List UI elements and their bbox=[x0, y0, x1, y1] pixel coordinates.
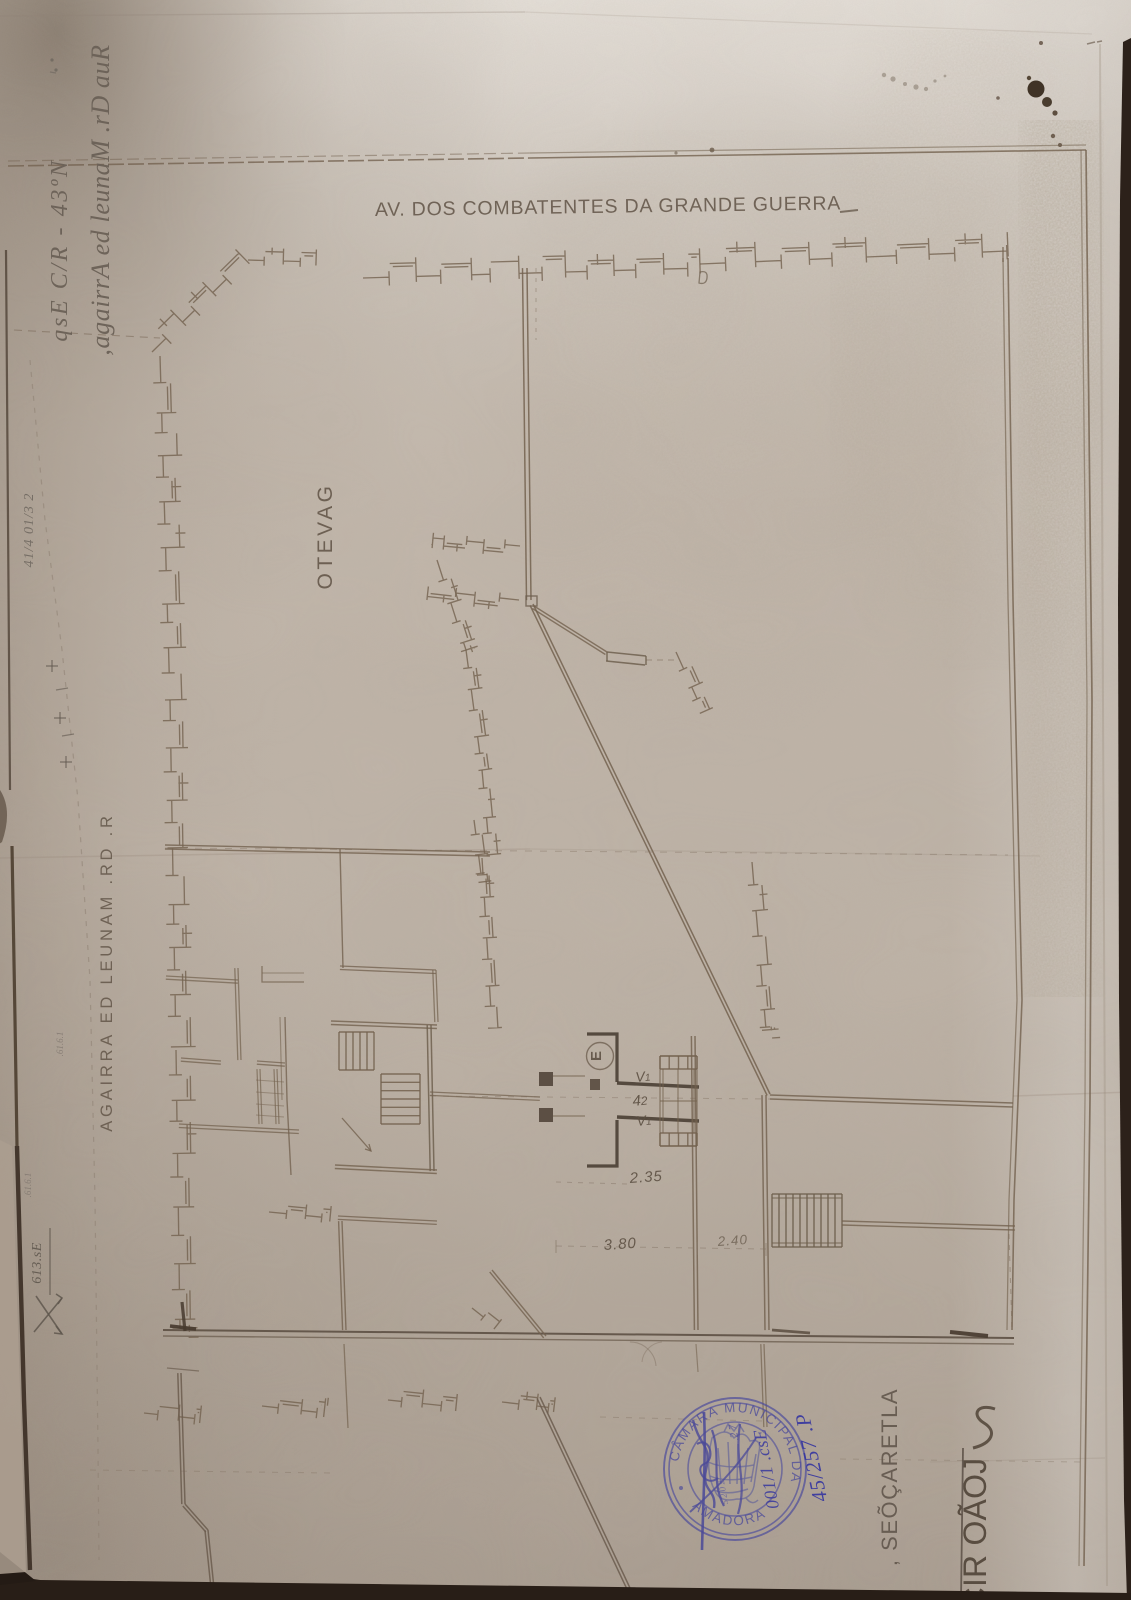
svg-text:qsE C/R - 43ºN: qsE C/R - 43ºN bbox=[47, 158, 73, 341]
svg-text:,agairrA ed leunaM .rD auR: ,agairrA ed leunaM .rD auR bbox=[86, 44, 115, 355]
svg-text:.61.6.1: .61.6.1 bbox=[55, 1032, 65, 1057]
svg-text:E: E bbox=[588, 1051, 605, 1061]
svg-text:42: 42 bbox=[632, 1091, 649, 1110]
svg-text:41/4 01/3 2: 41/4 01/3 2 bbox=[22, 493, 37, 568]
svg-text:2.40: 2.40 bbox=[716, 1232, 748, 1249]
svg-text:2.35: 2.35 bbox=[628, 1168, 663, 1187]
svg-text:AGAIRRA ED LEUNAM .RD .R: AGAIRRA ED LEUNAM .RD .R bbox=[98, 812, 116, 1132]
svg-text:.61.6.1: .61.6.1 bbox=[23, 1173, 33, 1198]
svg-text:613.sE: 613.sE bbox=[30, 1242, 45, 1284]
svg-text:OTEVAG: OTEVAG bbox=[314, 483, 337, 590]
svg-text:, SEÕÇARETLA: , SEÕÇARETLA bbox=[877, 1388, 902, 1566]
svg-text:3.80: 3.80 bbox=[603, 1235, 637, 1254]
